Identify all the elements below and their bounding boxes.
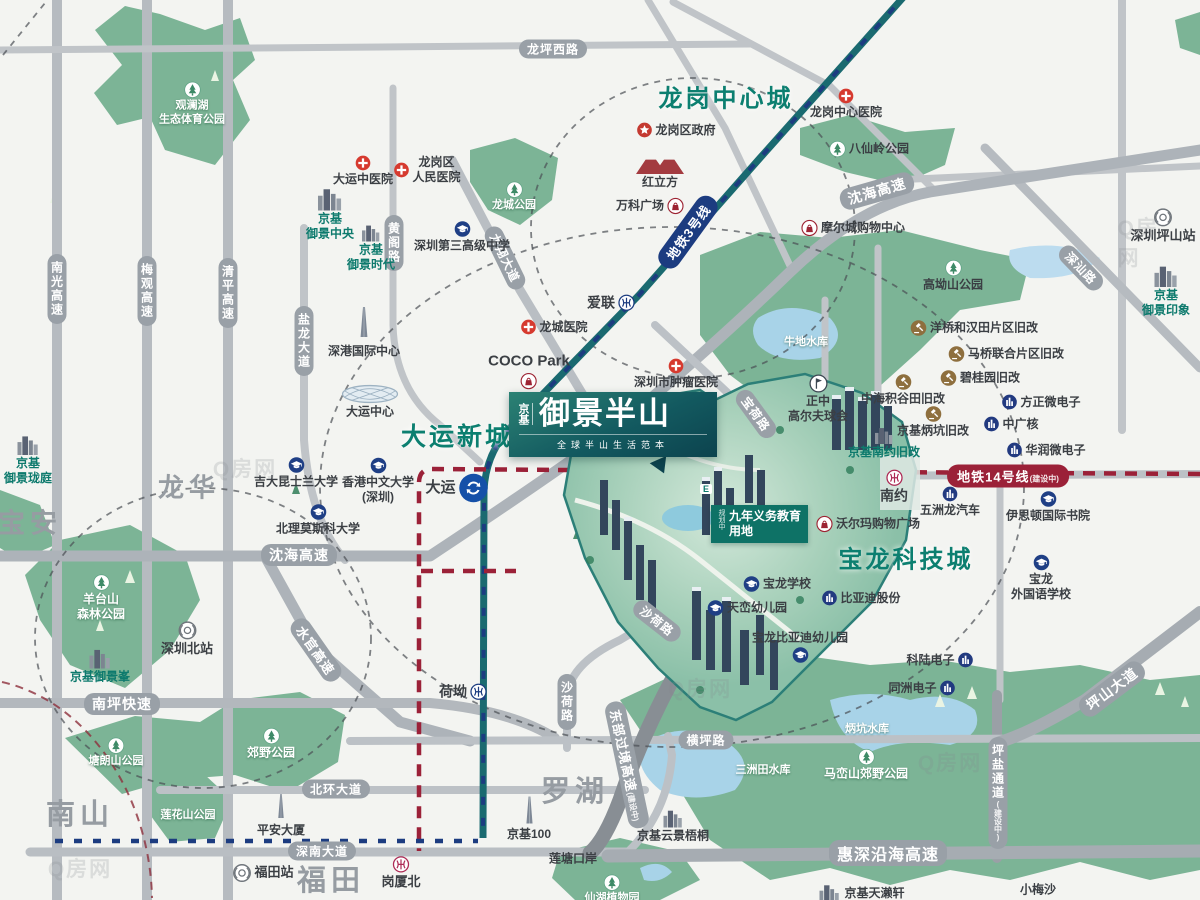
jiaoye-park[interactable]: 郊野公园 <box>247 728 295 761</box>
moercheng-mall[interactable]: 摩尔城购物中心 <box>801 220 905 237</box>
bldg-icon <box>1006 442 1022 458</box>
poi-label: 洋桥和汉田片区旧改 <box>930 321 1038 336</box>
founder-micro[interactable]: 方正微电子 <box>1001 394 1080 410</box>
tree-icon <box>108 737 125 754</box>
poi-label: 宝龙学校 <box>763 577 811 592</box>
no3-high-school[interactable]: 深圳第三高级中学 <box>414 221 510 254</box>
road-label: 南光高速 <box>48 254 67 324</box>
cgn[interactable]: 中广核 <box>983 416 1038 432</box>
road-label: 横坪路 <box>678 731 733 750</box>
poi-label: 中广核 <box>1002 417 1038 432</box>
area-label: 大运新城 <box>401 417 513 453</box>
gavel-icon <box>948 346 965 363</box>
golf-icon <box>808 374 827 393</box>
district-label: 宝安 <box>0 502 62 541</box>
tree-icon <box>92 574 109 591</box>
poi-label: 南约 <box>880 487 908 505</box>
longgang-central-hospital[interactable]: 龙岗中心医院 <box>810 88 882 120</box>
liantang-port[interactable]: 莲塘口岸 <box>549 852 597 867</box>
dome-icon <box>341 385 399 404</box>
yangqiao-redev[interactable]: 洋桥和汉田片区旧改 <box>910 320 1038 337</box>
jingji-yujingfeng[interactable]: 京基御景峯 <box>70 648 130 685</box>
road-label: 北环大道 <box>302 780 370 799</box>
poi-label: 深圳北站 <box>161 641 213 657</box>
bingkeng-reservoir[interactable]: 炳坑水库 <box>845 723 889 737</box>
moscow-univ[interactable]: 北理莫斯科大学 <box>276 504 360 537</box>
district-label: 龙华 <box>158 468 220 505</box>
education-land-line2: 用地 <box>729 524 753 538</box>
district-label: 福田 <box>297 857 365 899</box>
lianhuashan-park[interactable]: 莲花山公园 <box>161 809 216 823</box>
wuzhoulong-auto[interactable]: 五洲龙汽车 <box>920 486 980 518</box>
road-label-tag: (建设中) <box>994 800 1003 842</box>
poi-label: 爱联 <box>587 294 615 312</box>
poi-label: 龙城公园 <box>492 199 536 213</box>
walmart-plaza[interactable]: 沃尔玛购物广场 <box>816 516 920 533</box>
poi-label: 宝龙外国语学校 <box>1011 572 1071 602</box>
pingshan-station[interactable]: 深圳坪山站 <box>1130 208 1195 244</box>
baolong-school[interactable]: 宝龙学校 <box>743 576 811 593</box>
tanglangshan-park[interactable]: 塘朗山公园 <box>89 737 144 769</box>
xiaomeisha[interactable]: 小梅沙 <box>1020 883 1056 898</box>
cap-icon <box>1032 554 1049 571</box>
road-label: 梅观高速 <box>138 256 157 326</box>
poi-label: 正中高尔夫球会 <box>788 394 848 424</box>
logo-divider <box>519 434 707 435</box>
city-icon <box>817 883 841 900</box>
city-icon <box>1152 264 1180 287</box>
cap-icon <box>743 576 760 593</box>
heao-station[interactable]: 荷坳 <box>439 683 487 701</box>
poi-label: 羊台山森林公园 <box>77 592 125 622</box>
jingji-tianlaixuan[interactable]: 京基天濑轩 <box>817 883 904 900</box>
poi-label: 岗厦北 <box>381 874 420 890</box>
poi-label: 深圳市肿瘤医院 <box>634 375 718 390</box>
xianhu-garden[interactable]: 仙湖植物园 <box>585 874 640 900</box>
bldg-icon <box>940 680 956 696</box>
crmicro[interactable]: 华润微电子 <box>1006 442 1085 458</box>
baolong-foreign-school[interactable]: 宝龙外国语学校 <box>1011 554 1071 602</box>
city-icon <box>87 648 113 669</box>
poi-label: 京基100 <box>507 827 551 842</box>
cap-icon <box>791 647 808 664</box>
poi-label: 小梅沙 <box>1020 883 1056 898</box>
kelu-electronics[interactable]: 科陆电子 <box>906 652 973 668</box>
rail-icon <box>177 621 196 640</box>
easton-college[interactable]: 伊思顿国际书院 <box>1006 491 1090 524</box>
kingkey100[interactable]: 京基100 <box>507 794 551 842</box>
road-label: 沈海高速 <box>261 544 337 566</box>
spire-icon <box>525 794 534 826</box>
tree-icon <box>184 81 201 98</box>
city-icon <box>315 187 345 211</box>
gavel-icon <box>910 320 927 337</box>
biguiyuan-redev[interactable]: 碧桂园旧改 <box>940 370 1020 387</box>
maluanshan-park[interactable]: 马峦山郊野公园 <box>824 749 908 782</box>
jingji-yujing-impression[interactable]: 京基御景印象 <box>1142 264 1190 318</box>
road-label: 沙荷路 <box>558 674 577 730</box>
district-label: 南山 <box>46 791 114 833</box>
poi-label: 马峦山郊野公园 <box>824 767 908 782</box>
bldg-icon <box>821 590 837 606</box>
du-icon <box>459 473 489 503</box>
poi-label: 香港中文大学(深圳) <box>342 475 414 505</box>
poi-label: 高坳山公园 <box>923 278 983 293</box>
jida-queensland-univ[interactable]: 吉大昆士兰大学 <box>254 457 338 490</box>
cross-icon <box>355 155 371 171</box>
longgang-people-hospital[interactable]: 龙岗区人民医院 <box>393 155 460 185</box>
poi-label: 方正微电子 <box>1020 395 1080 410</box>
futian-station[interactable]: 福田站 <box>232 864 293 883</box>
tree-icon <box>506 181 523 198</box>
zhonghai-redev[interactable]: 中海积谷田旧改 <box>861 374 945 407</box>
metro-line-label: 地铁14号线(建设中) <box>947 465 1069 488</box>
niudi-reservoir[interactable]: 牛地水库 <box>784 336 828 350</box>
poi-label: 龙岗区政府 <box>655 123 715 138</box>
poi-label: 红立方 <box>642 175 678 190</box>
bag-icon <box>667 198 684 215</box>
spire-icon <box>359 301 369 343</box>
render-block-mark: E <box>700 484 712 494</box>
redcube-icon <box>633 158 687 174</box>
byd-kindergarten[interactable]: 宝龙比亚迪幼儿园 <box>752 631 848 664</box>
poi-label: 京基云景梧桐 <box>637 829 709 844</box>
road-label: 坪盐通道(建设中) <box>989 737 1008 849</box>
poi-label: 深港国际中心 <box>328 344 400 359</box>
poi-label: 平安大厦 <box>257 823 305 838</box>
area-label: 龙岗中心城 <box>659 79 794 114</box>
cross-icon <box>838 88 854 104</box>
poi-label: 伊思顿国际书院 <box>1006 509 1090 524</box>
project-logo-brand: 京基 <box>517 403 533 425</box>
poi-label: COCO Park <box>488 353 570 372</box>
gavel-icon <box>894 374 911 391</box>
bag-icon <box>801 220 818 237</box>
project-logo: 京基 御景半山 全球半山生活范本 <box>509 392 717 457</box>
rail-icon <box>1153 208 1172 227</box>
cross-icon <box>393 162 409 178</box>
road-label: 清平高速 <box>219 258 238 328</box>
mN-icon <box>470 684 487 701</box>
poi-label: 同洲电子 <box>888 681 936 696</box>
shenzhenbei-station[interactable]: 深圳北站 <box>161 621 213 657</box>
byd-co[interactable]: 比亚迪股份 <box>821 590 900 606</box>
poi-label: 龙城医院 <box>539 320 587 335</box>
bldg-icon <box>958 652 974 668</box>
rail-icon <box>232 864 251 883</box>
education-land-line1: 九年义务教育 <box>729 509 801 523</box>
area-label: 宝龙科技城 <box>839 540 974 575</box>
star-icon <box>636 122 652 138</box>
longgang-government[interactable]: 龙岗区政府 <box>636 122 715 138</box>
poi-label: 炳坑水库 <box>845 723 889 737</box>
coco-park[interactable]: COCO Park <box>488 353 570 390</box>
poi-label: 万科广场 <box>616 199 664 214</box>
poi-label: 京基御景珑庭 <box>4 456 52 486</box>
baxianling-park[interactable]: 八仙岭公园 <box>829 141 909 158</box>
poi-label: 牛地水库 <box>784 336 828 350</box>
bag-icon <box>520 372 537 389</box>
honglifang[interactable]: 红立方 <box>633 158 687 190</box>
tree-icon <box>944 260 961 277</box>
road-label: 深南大道 <box>288 842 356 861</box>
gangxiabei-station[interactable]: 岗厦北 <box>381 856 420 890</box>
tree-icon <box>857 749 874 766</box>
poi-label: 福田站 <box>254 865 293 881</box>
dayun-tcm-hospital[interactable]: 大运中医院 <box>333 155 393 187</box>
poi-label: 深圳第三高级中学 <box>414 239 510 254</box>
yangtaishan-park[interactable]: 羊台山森林公园 <box>77 574 125 622</box>
road-label: 惠深沿海高速 <box>829 840 947 866</box>
poi-label: 深圳坪山站 <box>1130 228 1195 244</box>
cross-icon <box>668 358 684 374</box>
poi-label: 京基御景时代 <box>347 243 395 273</box>
poi-label: 京基天濑轩 <box>844 886 904 900</box>
road-label: 盐龙大道 <box>295 306 314 376</box>
poi-label: 吉大昆士兰大学 <box>254 475 338 490</box>
poi-label: 三洲田水库 <box>736 764 791 778</box>
poi-label: 龙岗中心医院 <box>810 105 882 120</box>
cap-icon <box>369 457 386 474</box>
poi-label: 荷坳 <box>439 683 467 701</box>
poi-label: 天峦幼儿园 <box>727 601 787 616</box>
cap-icon <box>1039 491 1056 508</box>
poi-label: 华润微电子 <box>1025 443 1085 458</box>
mM-icon <box>886 469 903 486</box>
poi-label: 摩尔城购物中心 <box>821 221 905 236</box>
dayun-center[interactable]: 大运中心 <box>341 385 399 420</box>
poi-label: 京基御景峯 <box>70 670 130 685</box>
mM-icon <box>392 856 409 873</box>
poi-label: 大运中心 <box>346 405 394 420</box>
cap-icon <box>707 600 724 617</box>
mN-icon <box>618 295 635 312</box>
poi-label: 大运 <box>425 479 455 498</box>
poi-label: 宝龙比亚迪幼儿园 <box>752 631 848 646</box>
poi-label: 马桥联合片区旧改 <box>968 347 1064 362</box>
spire-icon <box>277 790 285 822</box>
sanzhoutian-reservoir[interactable]: 三洲田水库 <box>736 764 791 778</box>
poi-label: 仙湖植物园 <box>585 892 640 900</box>
gaoaoshan-park[interactable]: 高坳山公园 <box>923 260 983 293</box>
jingji-yujing-era[interactable]: 京基御景时代 <box>347 224 395 273</box>
poi-label: 京基南约旧改 <box>848 445 920 460</box>
cap-icon <box>309 504 326 521</box>
poi-label: 观澜湖生态体育公园 <box>159 99 225 127</box>
vanke-plaza[interactable]: 万科广场 <box>616 198 684 215</box>
tianluan-kindergarten[interactable]: 天峦幼儿园 <box>707 600 787 617</box>
road-label: 龙坪西路 <box>519 40 587 59</box>
poi-label: 龙岗区人民医院 <box>412 155 460 185</box>
jingji-yunjing-wutong[interactable]: 京基云景梧桐 <box>637 809 709 844</box>
bldg-icon <box>983 416 999 432</box>
map-canvas[interactable]: 京基 御景半山 全球半山生活范本 规划中 九年义务教育 用地 E 大运中医院龙岗… <box>0 0 1200 900</box>
gavel-icon <box>924 406 941 423</box>
poi-label: 八仙岭公园 <box>849 142 909 157</box>
shengang-intl-center[interactable]: 深港国际中心 <box>328 301 400 359</box>
nanyue-station[interactable]: 南约 <box>880 469 908 505</box>
dayun-station[interactable]: 大运 <box>425 473 488 503</box>
bldg-icon <box>1001 394 1017 410</box>
poi-label: 莲塘口岸 <box>549 852 597 867</box>
tree-icon <box>604 874 621 891</box>
jingji-nanyue-redev[interactable]: 京基南约旧改 <box>848 426 920 460</box>
pingan-tower[interactable]: 平安大厦 <box>257 790 305 838</box>
city-icon <box>661 809 685 828</box>
ailian-station[interactable]: 爱联 <box>587 294 635 312</box>
road-label: 南坪快速 <box>84 693 160 715</box>
city-icon <box>873 426 895 444</box>
poi-label: 中海积谷田旧改 <box>861 392 945 407</box>
poi-label: 比亚迪股份 <box>840 591 900 606</box>
city-icon <box>360 224 382 242</box>
district-label: 罗湖 <box>541 768 609 810</box>
cap-icon <box>287 457 304 474</box>
bag-icon <box>816 516 833 533</box>
poi-label: 碧桂园旧改 <box>960 371 1020 386</box>
city-icon <box>15 434 41 455</box>
poi-label: 北理莫斯科大学 <box>276 522 360 537</box>
poi-label: 莲花山公园 <box>161 809 216 823</box>
zhengzhong-golf[interactable]: 正中高尔夫球会 <box>788 374 848 424</box>
education-land-tag: 规划中 <box>718 509 725 539</box>
cross-icon <box>520 319 536 335</box>
guanlanhu-park[interactable]: 观澜湖生态体育公园 <box>159 81 225 127</box>
poi-label: 京基御景印象 <box>1142 288 1190 318</box>
longcheng-park[interactable]: 龙城公园 <box>492 181 536 213</box>
poi-label: 科陆电子 <box>906 653 954 668</box>
education-land-box: 规划中 九年义务教育 用地 <box>711 505 808 543</box>
poi-label: 沃尔玛购物广场 <box>836 517 920 532</box>
cuhk-shenzhen[interactable]: 香港中文大学(深圳) <box>342 457 414 505</box>
poi-label: 大运中医院 <box>333 172 393 187</box>
maqiao-redev[interactable]: 马桥联合片区旧改 <box>948 346 1064 363</box>
poi-label: 郊野公园 <box>247 746 295 761</box>
tree-icon <box>829 141 846 158</box>
cap-icon <box>453 221 470 238</box>
poi-label: 五洲龙汽车 <box>920 503 980 518</box>
longcheng-hospital[interactable]: 龙城医院 <box>520 319 587 335</box>
jingji-yujing-longting[interactable]: 京基御景珑庭 <box>4 434 52 486</box>
tree-icon <box>262 728 279 745</box>
bldg-icon <box>942 486 958 502</box>
poi-label: 塘朗山公园 <box>89 755 144 769</box>
project-logo-title: 御景半山 <box>539 397 671 431</box>
project-logo-tagline: 全球半山生活范本 <box>517 438 709 451</box>
cancer-hospital[interactable]: 深圳市肿瘤医院 <box>634 358 718 390</box>
metro-line-tag: (建设中) <box>1030 475 1059 484</box>
tongzhou-electronics[interactable]: 同洲电子 <box>888 680 955 696</box>
